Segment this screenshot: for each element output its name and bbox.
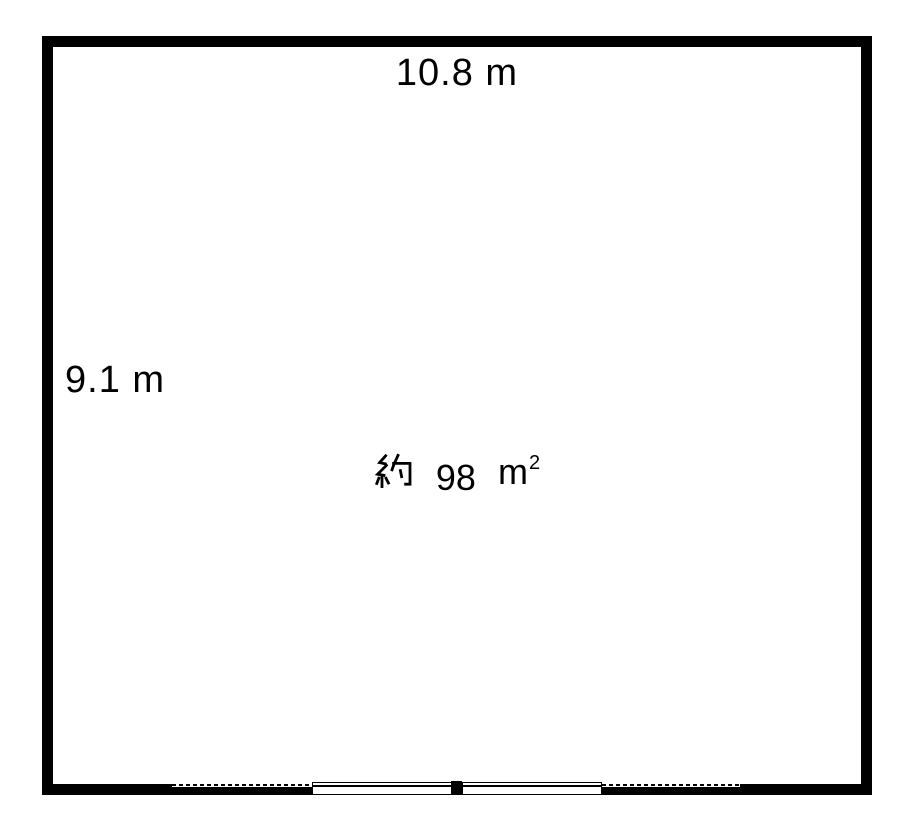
window-opening-left (312, 782, 452, 795)
window-opening-right (462, 782, 602, 795)
shutter-wall-band-right (602, 787, 740, 795)
side-dimension-label: 9.1 m (65, 361, 165, 399)
shutter-dash-line-left (172, 784, 312, 786)
shutter-track-right (602, 783, 740, 795)
area-prefix-kanji: 約 (374, 452, 414, 494)
room-outline (42, 36, 872, 795)
shutter-dash-line-right (602, 784, 740, 786)
area-unit-base: m (498, 451, 528, 492)
shutter-wall-band-left (172, 787, 312, 795)
area-label: 約 98 m2 (42, 452, 872, 498)
area-unit: m2 (498, 452, 540, 498)
area-unit-exponent: 2 (529, 452, 540, 474)
shutter-track-left (172, 783, 312, 795)
center-post (451, 781, 462, 795)
window-sash-line-right (462, 785, 602, 787)
floor-plan-canvas: 10.8 m 9.1 m 約 98 m2 (0, 0, 913, 831)
area-value: 98 (436, 458, 476, 498)
top-dimension-label: 10.8 m (42, 54, 872, 92)
window-sash-line-left (312, 785, 452, 787)
